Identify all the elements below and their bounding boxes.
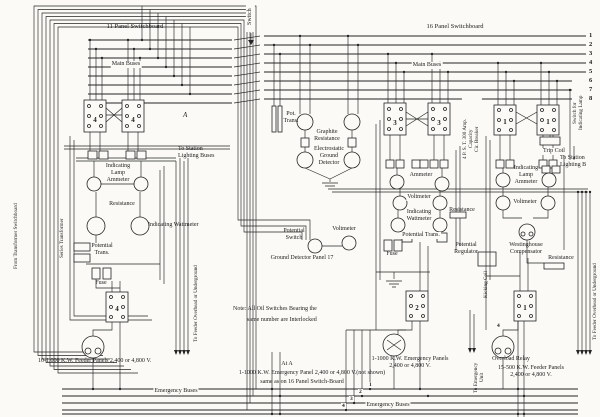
note-line-1: Note: All Oil Switches Bearing the (233, 306, 317, 313)
transfer-switch-label: Switch (246, 2, 255, 32)
emergency-buses-label-left: Emergency Buses (153, 388, 198, 395)
lighting-fuse-block (542, 166, 550, 173)
emergency-panels-caption: 1-1000 K.W. Emergency Panels 2,400 or 4,… (372, 356, 449, 370)
voltmeter-label-gd: Voltmeter (332, 226, 356, 233)
switch-number: 1 (546, 118, 550, 126)
feeder-panels-caption-left: 10-1,000 K.W. Feeder Panels 2,400 or 4,8… (38, 358, 151, 365)
pot-trans-strip (272, 106, 276, 132)
relay-panel-number: 4 (497, 323, 500, 329)
graphite-resistor (348, 138, 356, 147)
potential-transformer (74, 243, 90, 251)
feeder-arrows-right (576, 350, 592, 355)
ct-block (137, 151, 146, 159)
westinghouse-compensator-label: Westinghouse Compensator (509, 242, 543, 256)
potential-trans-label-left: Potential Trans. (91, 243, 112, 257)
resistance-label-left: Resistance (109, 201, 135, 208)
to-feeder-label-right: To Feeder Overhead or Underground (592, 252, 600, 352)
ct-block (386, 160, 394, 168)
wiring-diagram-canvas: 4 4 3 3 1 1 4 2 1 (0, 0, 600, 417)
series-transformer-label: Series Transformer (60, 188, 66, 288)
pot-trans-label: Pot. Trans. (284, 111, 299, 125)
fuse-label-mid: Fuse (386, 251, 397, 258)
switch-number: 4 (131, 116, 135, 124)
graphite-resistance-label: Graphite Resistance (313, 129, 341, 143)
switch-for-lamp-label: Switch for Indicating Lamp (572, 80, 586, 146)
graphite-resistor (301, 138, 309, 147)
from-transfer-label: From Transformer Switchboard (14, 166, 20, 306)
switch-number: 1 (503, 118, 507, 126)
emergency-panel-note-2: same as on 16 Panel Switch-Board (260, 379, 343, 386)
switch-number: 4 (115, 305, 119, 313)
emergency-bus-lines (62, 389, 578, 414)
ct-block (396, 160, 404, 168)
overload-relay-label: Overload Relay (492, 356, 530, 363)
ct-block (126, 151, 135, 159)
electrostatic-detector-label: Electrostatic Ground Detector (314, 146, 344, 167)
bus-number-6: 6 (589, 77, 592, 84)
note-line-2: same number are Interlocked (247, 317, 317, 324)
ground-detector-panel-title: Ground Detector Panel 17 (271, 255, 334, 262)
fuse-block (384, 240, 392, 251)
circuit-breaker-label: 4 P. S. T. 300 Amp. Capacity Cir. Breake… (462, 96, 482, 182)
marker-a: A (183, 111, 187, 119)
bus-number-2: 2 (589, 41, 592, 48)
switch-number: 3 (437, 119, 441, 127)
ct-block (412, 160, 420, 168)
lamp-ammeter-label-left: Indicating Lamp Ammeter (106, 163, 130, 184)
trip-coil-box (540, 137, 560, 145)
at-a-label: At A (281, 361, 293, 368)
bus-number-5: 5 (589, 68, 592, 75)
emergency-bus-number-1: 1 (368, 382, 373, 388)
emergency-buses-label-right: Emergency Buses (365, 402, 410, 409)
bus-number-7: 7 (589, 86, 592, 93)
ct-block (430, 160, 438, 168)
fuse-label-left: Fuse (95, 280, 106, 287)
fuse-block (394, 240, 402, 251)
ct-block (420, 160, 428, 168)
wattmeter-label-mid: Indicating Wattmeter (407, 209, 432, 223)
ct-block (440, 160, 448, 168)
ammeter-label-mid: Ammeter (410, 172, 433, 179)
emergency-bus-number-2: 2 (358, 389, 363, 395)
left-bus-lines (88, 40, 232, 103)
ct-block (99, 151, 108, 159)
bus-number-8: 8 (589, 95, 592, 102)
ct-block (506, 160, 514, 168)
switch-number: 2 (415, 304, 419, 312)
bus-number-3: 3 (589, 50, 592, 57)
voltmeter-label-mid: Voltmeter (406, 194, 432, 201)
potential-transformer (74, 254, 90, 262)
potential-trans-label-mid: Potential Trans. (401, 232, 441, 239)
emergency-bus-number-4: 4 (341, 403, 346, 409)
fuse-block (92, 268, 100, 279)
main-buses-label-left: Main Buses (111, 61, 142, 68)
ct-block (88, 151, 97, 159)
resistance-label-right: Resistance (547, 255, 575, 262)
potential-switch-label: Potential Switch (283, 228, 304, 242)
bus-number-4: 4 (589, 59, 592, 66)
feeder-arrows-left (174, 350, 190, 355)
emergency-bus-number-3: 3 (349, 396, 354, 402)
ct-block (496, 160, 504, 168)
switch-number: 1 (523, 304, 527, 312)
feeder-panels-caption-right: 15-500 K.W. Feeder Panels 2,400 or 4,800… (498, 365, 564, 379)
bus-number-1: 1 (589, 32, 592, 39)
resistance-label-mid: Resistance (449, 207, 475, 214)
trip-coil-label: Trip Coil (542, 148, 566, 155)
fuse-block (103, 268, 111, 279)
voltmeter-label-right: Voltmeter (512, 199, 538, 206)
main-buses-label-right: Main Buses (412, 62, 443, 69)
lighting-fuse-block (552, 166, 560, 173)
emergency-panel-note-1: 1-1000 K.W. Emergency Panel 2,400 or 4,8… (239, 370, 385, 377)
potential-regulator-label: Potential Regulator (454, 242, 478, 256)
wiring-artwork: 4 4 3 3 1 1 4 2 1 (0, 0, 600, 417)
switch-number: 3 (393, 119, 397, 127)
switch-number: 4 (93, 116, 97, 124)
kicking-coil-label: Kicking Coil (484, 260, 490, 310)
to-feeder-label-left: To Feeder Overhead or Underground (193, 255, 201, 353)
wattmeter-label-left: Indicating Wattmeter (148, 222, 199, 229)
station-lighting-label-left: To Station Lighting Buses (178, 146, 215, 160)
to-emergency-unit-label: To Emergency Unit (474, 350, 486, 405)
station-lighting-label-right: To Station Lighting B (560, 155, 586, 169)
pot-trans-strip (278, 106, 282, 132)
resistor-block (544, 263, 564, 269)
right-board-title: 16 Panel Switchboard (426, 23, 483, 30)
left-board-title: 11 Panel Switchboard (107, 23, 164, 30)
lamp-ammeter-label-right: Indicating Lamp Ammeter (514, 165, 538, 186)
